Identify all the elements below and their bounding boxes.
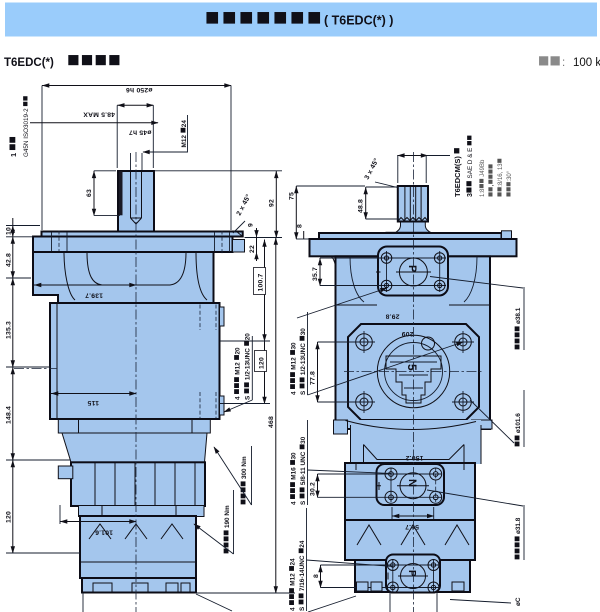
svg-text:48.5 MAX: 48.5 MAX (83, 111, 115, 118)
svg-text:5: 5 (405, 364, 419, 371)
svg-text:139.7: 139.7 (85, 292, 103, 299)
svg-text:35.7: 35.7 (312, 267, 319, 281)
svg-text:77.8: 77.8 (310, 371, 317, 385)
svg-text:■■■■■■■: ■■■■■■■ (205, 4, 324, 31)
svg-text:10: 10 (6, 227, 13, 235)
svg-text:T6EDC(*): T6EDC(*) (4, 57, 54, 69)
svg-text:63: 63 (86, 189, 93, 197)
svg-text:■■: ■■ (538, 51, 561, 72)
svg-text:■■■■: ■■■■ (67, 49, 122, 72)
svg-text:8: 8 (297, 224, 304, 228)
svg-text:56.7: 56.7 (405, 523, 419, 530)
svg-text:P: P (406, 265, 418, 272)
svg-text:120: 120 (6, 511, 13, 523)
svg-text:120: 120 (259, 357, 266, 369)
svg-text:75: 75 (289, 192, 296, 200)
svg-text:9: 9 (248, 223, 255, 227)
svg-text:T6EDCM(S) ■: T6EDCM(S) ■ (451, 147, 463, 197)
svg-text:100.7: 100.7 (258, 273, 265, 291)
svg-text::: : (562, 57, 565, 69)
svg-text:148.4: 148.4 (6, 406, 13, 424)
svg-text:30.2: 30.2 (310, 482, 317, 496)
svg-text:22: 22 (249, 245, 256, 253)
svg-text:( T6EDC(*) ): ( T6EDC(*) ) (324, 14, 393, 28)
svg-text:ø250 h6: ø250 h6 (126, 86, 153, 93)
svg-text:ø45 h7: ø45 h7 (129, 129, 152, 136)
svg-text:135.3: 135.3 (6, 321, 13, 339)
svg-text:8: 8 (313, 574, 320, 578)
svg-text:29.8: 29.8 (385, 313, 399, 320)
svg-text:115: 115 (87, 399, 99, 406)
svg-text:100 kg: 100 kg (573, 57, 600, 69)
svg-text:150.2: 150.2 (405, 454, 423, 461)
svg-text:468: 468 (268, 416, 275, 428)
svg-text:48.8: 48.8 (358, 199, 365, 213)
svg-text:øC: øC (515, 597, 522, 606)
svg-text:42.8: 42.8 (6, 253, 13, 267)
svg-text:92: 92 (269, 199, 276, 207)
svg-text:101.6: 101.6 (95, 529, 113, 536)
